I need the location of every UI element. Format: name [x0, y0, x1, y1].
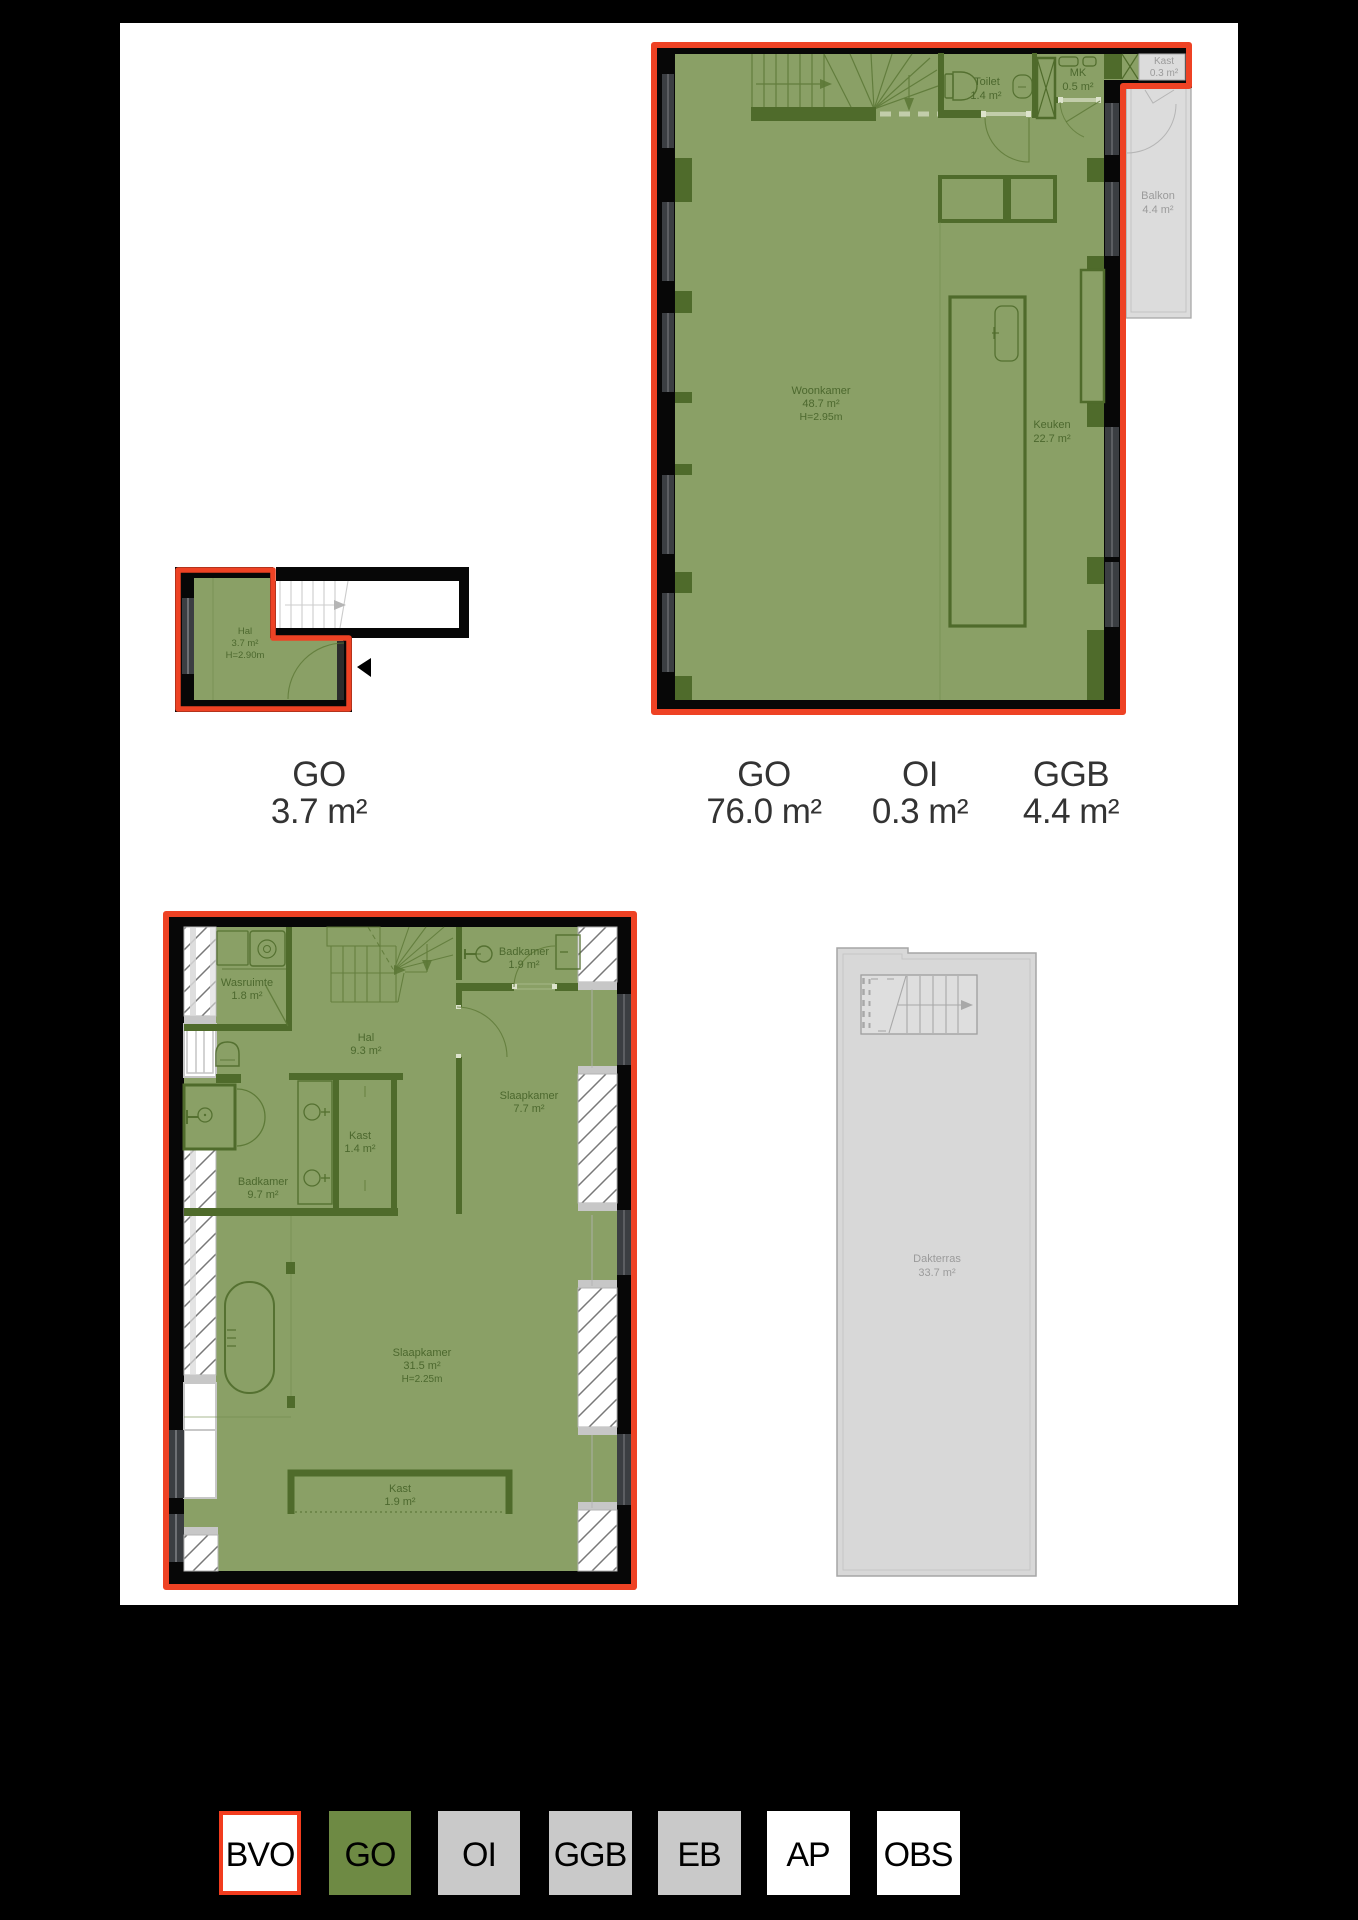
- svg-text:31.5 m²: 31.5 m²: [403, 1360, 441, 1372]
- svg-text:3.7 m²: 3.7 m²: [232, 638, 259, 649]
- svg-text:MK: MK: [1070, 67, 1087, 79]
- svg-text:9.7 m²: 9.7 m²: [247, 1189, 279, 1201]
- svg-text:Slaapkamer: Slaapkamer: [393, 1347, 452, 1359]
- svg-text:48.7 m²: 48.7 m²: [802, 398, 840, 410]
- svg-text:AP: AP: [786, 1836, 829, 1874]
- svg-text:76.0 m²: 76.0 m²: [706, 792, 821, 831]
- svg-text:1.9 m²: 1.9 m²: [384, 1496, 416, 1508]
- svg-text:GO: GO: [737, 755, 790, 794]
- svg-text:Kast: Kast: [1154, 56, 1174, 67]
- svg-text:Kast: Kast: [349, 1130, 371, 1142]
- svg-text:Badkamer: Badkamer: [238, 1176, 288, 1188]
- svg-text:OI: OI: [462, 1836, 496, 1874]
- svg-text:3.7 m²: 3.7 m²: [271, 792, 367, 831]
- svg-text:EB: EB: [677, 1836, 720, 1874]
- svg-text:4.4 m²: 4.4 m²: [1142, 204, 1174, 216]
- svg-text:Hal: Hal: [238, 626, 252, 637]
- svg-text:1.8 m²: 1.8 m²: [231, 990, 263, 1002]
- svg-text:Keuken: Keuken: [1033, 419, 1070, 431]
- svg-text:Badkamer: Badkamer: [499, 946, 549, 958]
- svg-text:Balkon: Balkon: [1141, 190, 1175, 202]
- svg-text:GGB: GGB: [554, 1836, 627, 1874]
- svg-text:H=2.95m: H=2.95m: [800, 411, 843, 423]
- svg-text:1.4 m²: 1.4 m²: [970, 90, 1002, 102]
- svg-text:GO: GO: [292, 755, 345, 794]
- svg-text:OI: OI: [902, 755, 938, 794]
- svg-text:4.4 m²: 4.4 m²: [1023, 792, 1119, 831]
- svg-text:0.3 m²: 0.3 m²: [1150, 68, 1179, 79]
- svg-text:33.7 m²: 33.7 m²: [918, 1267, 956, 1279]
- svg-text:1.9 m²: 1.9 m²: [508, 959, 540, 971]
- svg-text:Kast: Kast: [389, 1483, 411, 1495]
- svg-text:0.3 m²: 0.3 m²: [872, 792, 968, 831]
- svg-text:22.7 m²: 22.7 m²: [1033, 433, 1071, 445]
- svg-text:H=2.90m: H=2.90m: [226, 650, 265, 661]
- svg-text:BVO: BVO: [226, 1836, 295, 1874]
- svg-text:OBS: OBS: [884, 1836, 953, 1874]
- svg-text:1.4 m²: 1.4 m²: [344, 1143, 376, 1155]
- svg-text:H=2.25m: H=2.25m: [402, 1374, 443, 1385]
- svg-text:Dakterras: Dakterras: [913, 1253, 961, 1265]
- svg-text:Slaapkamer: Slaapkamer: [500, 1090, 559, 1102]
- svg-text:7.7 m²: 7.7 m²: [513, 1103, 545, 1115]
- svg-text:0.5 m²: 0.5 m²: [1062, 81, 1094, 93]
- svg-text:GO: GO: [345, 1836, 396, 1874]
- svg-text:9.3 m²: 9.3 m²: [350, 1045, 382, 1057]
- svg-text:Woonkamer: Woonkamer: [791, 385, 850, 397]
- svg-text:GGB: GGB: [1033, 755, 1109, 794]
- svg-text:Toilet: Toilet: [974, 76, 1000, 88]
- svg-text:Hal: Hal: [358, 1032, 375, 1044]
- svg-text:Wasruimte: Wasruimte: [221, 977, 273, 989]
